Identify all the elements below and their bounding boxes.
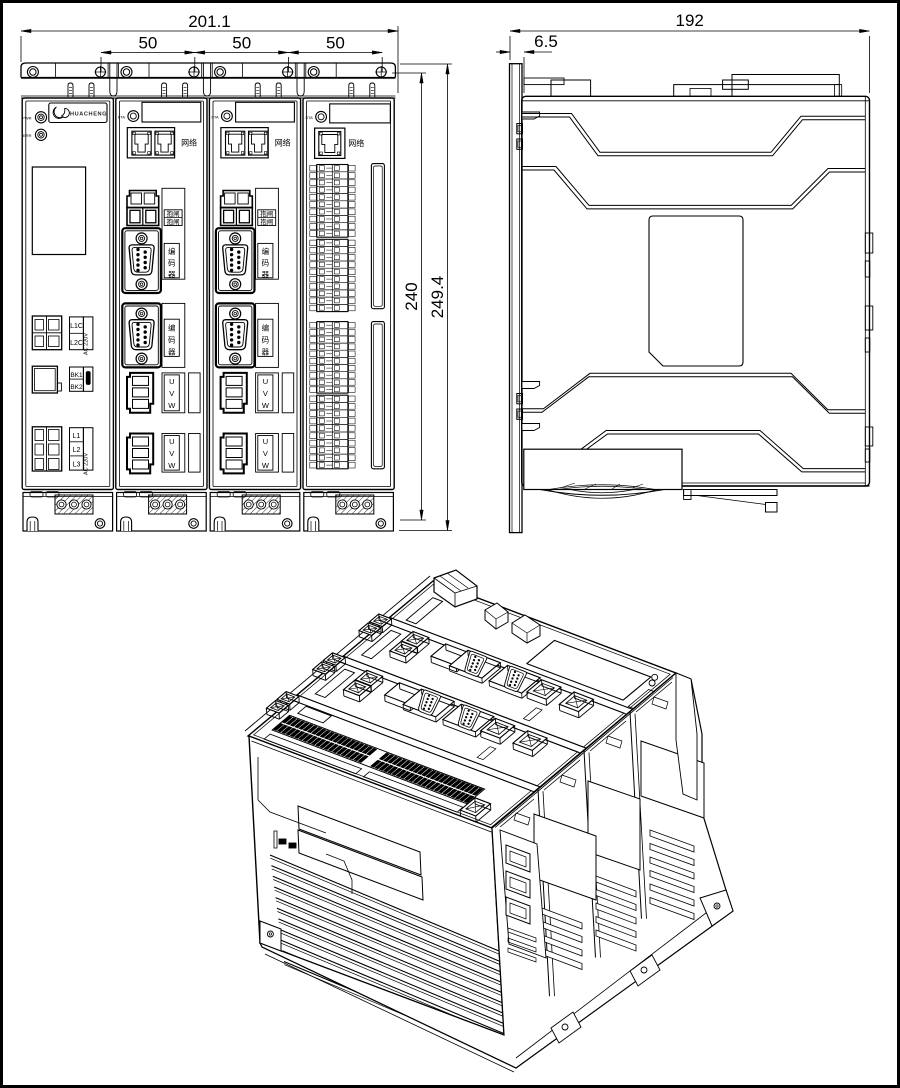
svg-text:码: 码 — [262, 259, 270, 268]
svg-text:码: 码 — [262, 336, 270, 345]
svg-text:编: 编 — [262, 323, 270, 333]
svg-text:W: W — [168, 461, 176, 470]
svg-text:器: 器 — [168, 348, 176, 357]
svg-text:L2: L2 — [73, 447, 81, 454]
svg-text:249.4: 249.4 — [428, 276, 447, 319]
svg-text:抱闸: 抱闸 — [260, 209, 273, 218]
svg-text:192: 192 — [676, 11, 704, 30]
svg-text:抱闸: 抱闸 — [167, 217, 180, 226]
svg-text:L2C: L2C — [70, 340, 83, 347]
svg-text:网络: 网络 — [348, 138, 364, 148]
svg-text:50: 50 — [232, 34, 251, 53]
svg-text:V: V — [263, 389, 268, 398]
svg-text:AC 220V: AC 220V — [84, 333, 90, 355]
svg-text:U: U — [169, 437, 174, 446]
svg-text:ERR: ERR — [23, 133, 32, 138]
svg-text:L3: L3 — [73, 462, 81, 469]
svg-text:U: U — [263, 377, 268, 386]
svg-text:U: U — [169, 377, 174, 386]
svg-text:201.1: 201.1 — [188, 12, 231, 31]
svg-text:BK2: BK2 — [70, 384, 83, 391]
svg-text:抱闸: 抱闸 — [167, 209, 180, 218]
svg-text:W: W — [262, 401, 270, 410]
svg-text:网络: 网络 — [181, 138, 197, 148]
svg-text:50: 50 — [138, 34, 157, 53]
svg-text:240: 240 — [402, 282, 421, 310]
svg-text:编: 编 — [168, 246, 176, 256]
svg-text:L1: L1 — [73, 433, 81, 440]
svg-text:AC 220V: AC 220V — [84, 453, 90, 475]
svg-text:6.5: 6.5 — [534, 32, 558, 51]
svg-text:编: 编 — [262, 246, 270, 256]
svg-text:V: V — [169, 389, 174, 398]
svg-text:网络: 网络 — [275, 138, 291, 148]
svg-text:L1C: L1C — [70, 323, 83, 330]
svg-text:器: 器 — [262, 270, 270, 279]
svg-text:V: V — [263, 449, 268, 458]
svg-text:PWR: PWR — [22, 116, 31, 121]
svg-text:STA: STA — [211, 114, 219, 119]
svg-text:W: W — [262, 461, 270, 470]
svg-text:V: V — [169, 449, 174, 458]
svg-text:STA: STA — [305, 115, 313, 120]
svg-text:码: 码 — [168, 336, 176, 345]
svg-text:器: 器 — [168, 270, 176, 279]
svg-text:BK1: BK1 — [70, 372, 83, 379]
svg-text:HUACHENG: HUACHENG — [70, 112, 107, 118]
svg-text:50: 50 — [326, 34, 345, 53]
svg-text:U: U — [263, 437, 268, 446]
svg-text:码: 码 — [168, 259, 176, 268]
svg-text:W: W — [168, 401, 176, 410]
svg-text:编: 编 — [168, 323, 176, 333]
svg-text:抱闸: 抱闸 — [260, 217, 273, 226]
svg-text:STA: STA — [118, 114, 126, 119]
svg-text:器: 器 — [262, 348, 270, 357]
